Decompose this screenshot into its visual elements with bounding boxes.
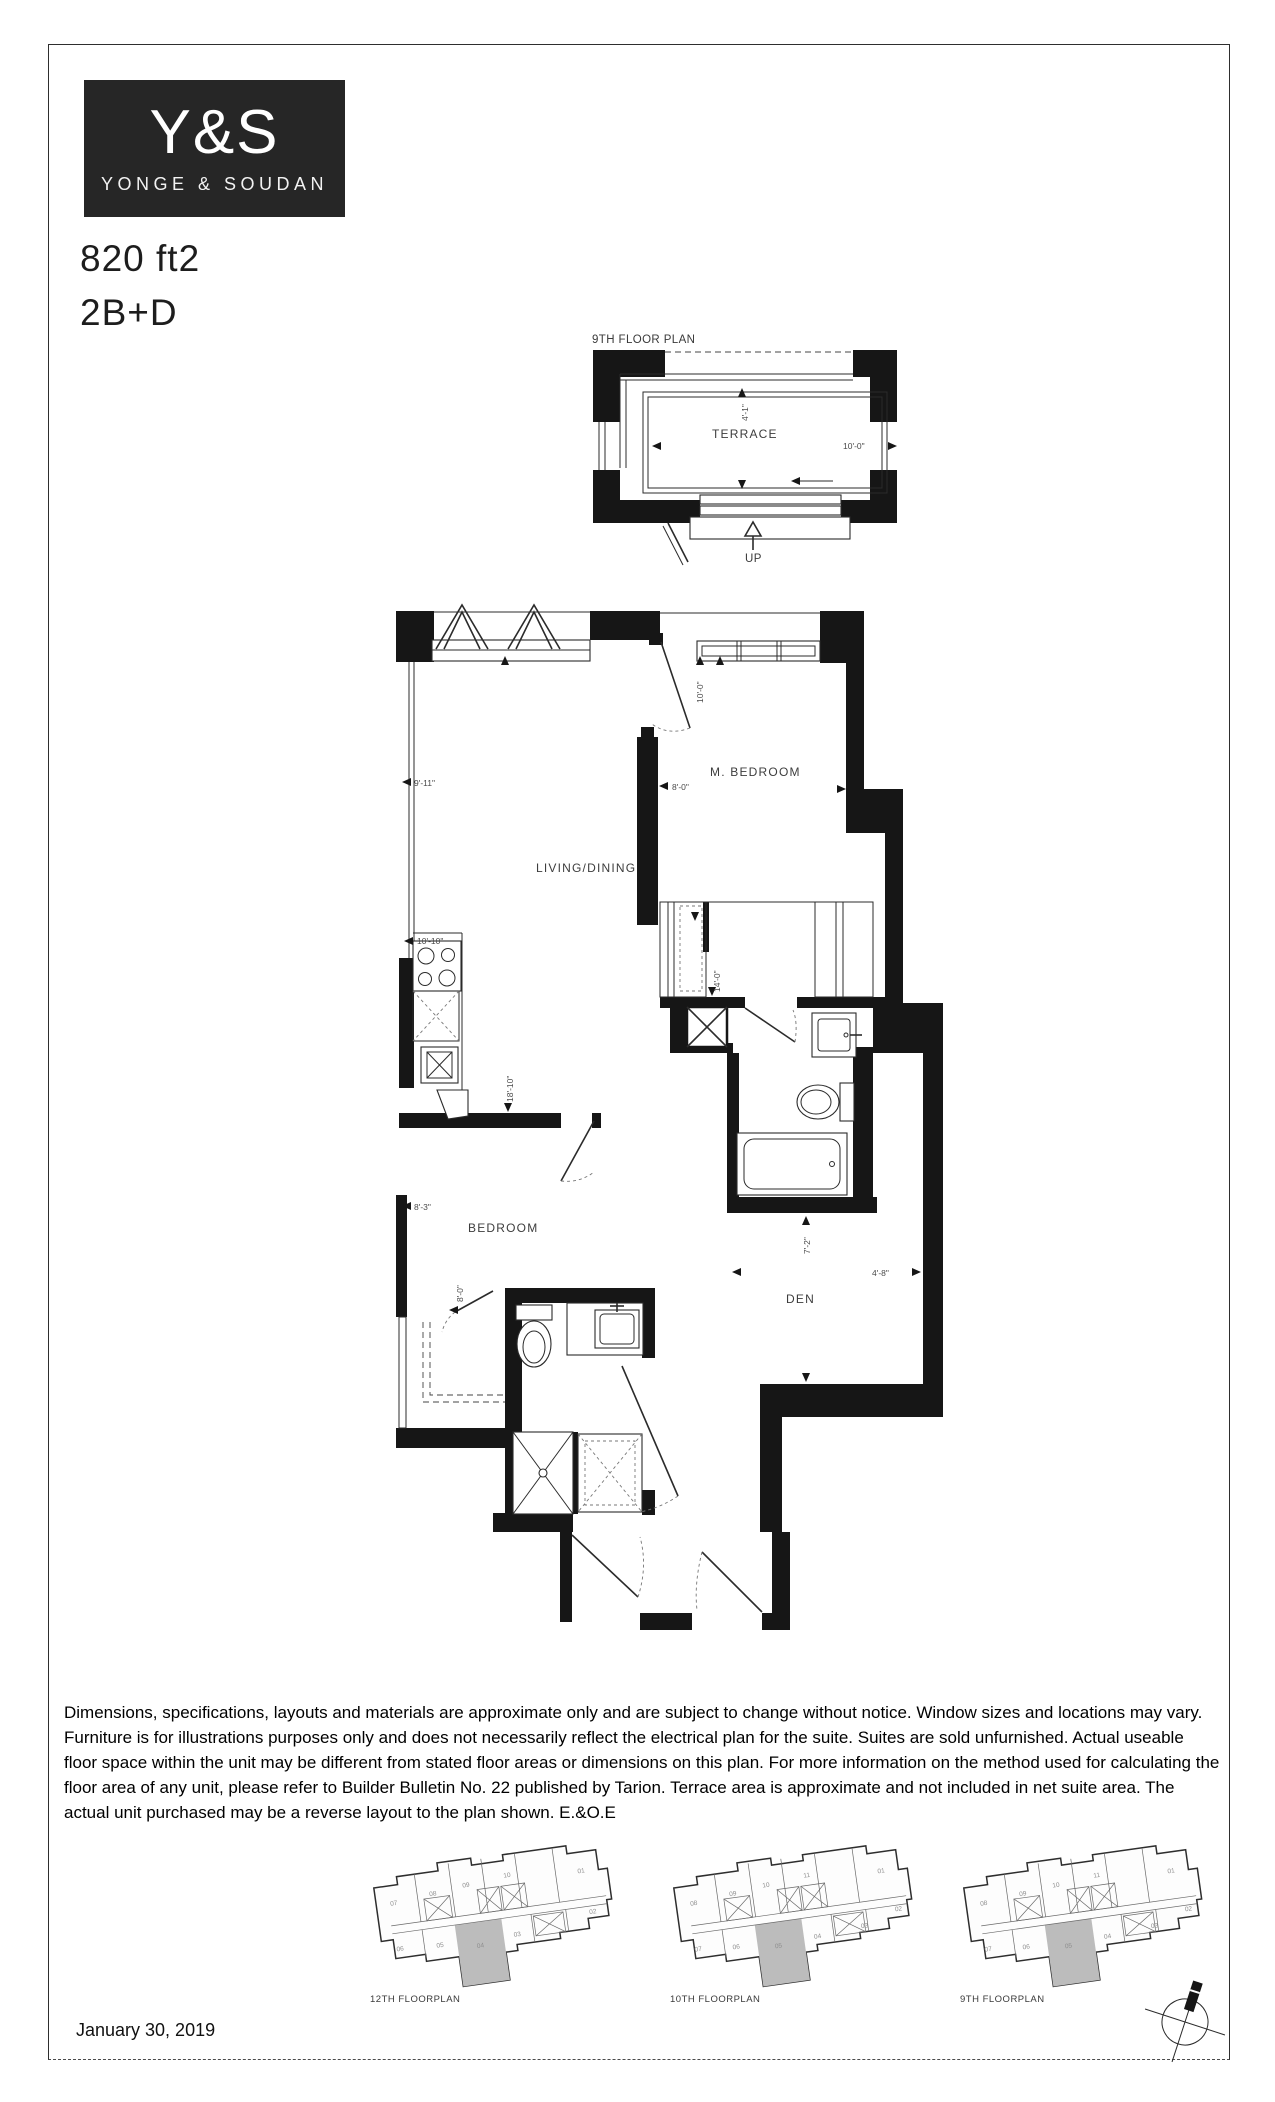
unit-number: 03 <box>513 1931 522 1939</box>
unit-number: 10 <box>1052 1882 1061 1890</box>
unit-number: 03 <box>1151 1922 1160 1930</box>
unit-number: 05 <box>1065 1942 1074 1950</box>
terrace-depth-dim: 4'-1" <box>740 404 750 421</box>
dim-living-width: 9'-11" <box>414 778 435 788</box>
unit-number: 05 <box>436 1942 445 1950</box>
balcony-door <box>652 642 690 731</box>
terrace-width-dim: 10'-0" <box>843 441 865 451</box>
bedroom-label: BEDROOM <box>468 1221 538 1235</box>
dishwasher <box>413 991 459 1041</box>
brand-name: YONGE & SOUDAN <box>101 174 328 195</box>
dim-bedroom-closet: 8'-0" <box>455 1285 465 1302</box>
highlighted-unit <box>1045 1919 1100 1987</box>
terrace-plan-title: 9TH FLOOR PLAN <box>592 334 695 346</box>
dim-closet-run: 14'-0" <box>712 970 722 992</box>
dim-den-width: 4'-8" <box>872 1268 889 1278</box>
unit-number: 04 <box>476 1942 485 1950</box>
key-plan-label: 10TH FLOORPLAN <box>670 1994 760 2005</box>
floorplan-sheet: Y&S YONGE & SOUDAN 820 ft2 2B+D 9TH FLOO… <box>0 0 1275 2102</box>
master-closets <box>660 902 873 997</box>
highlighted-unit <box>455 1919 510 1987</box>
main-bath <box>737 1008 862 1195</box>
kitchen <box>413 933 468 1119</box>
suite-plan: LIVING/DINING M. BEDROOM BEDROOM DEN 9'-… <box>390 595 955 1640</box>
unit-number: 09 <box>462 1882 471 1890</box>
brand-abbreviation: Y&S <box>149 102 279 164</box>
unit-number: 02 <box>895 1905 904 1913</box>
unit-number: 01 <box>877 1867 886 1875</box>
dim-master-width: 8'-0" <box>672 782 689 792</box>
disclaimer-text: Dimensions, specifications, layouts and … <box>64 1700 1220 1825</box>
key-plan-label: 9TH FLOORPLAN <box>960 1994 1045 2005</box>
plan-date: January 30, 2019 <box>76 2020 215 2041</box>
unit-number: 06 <box>1022 1943 1031 1951</box>
unit-number: 08 <box>690 1900 699 1908</box>
bathtub <box>737 1133 847 1195</box>
brand-logo: Y&S YONGE & SOUDAN <box>84 80 345 217</box>
unit-number: 06 <box>732 1943 741 1951</box>
bath2-sink <box>595 1310 639 1348</box>
unit-number: 07 <box>984 1946 993 1954</box>
unit-number: 01 <box>577 1867 586 1875</box>
den-label: DEN <box>786 1292 815 1306</box>
unit-number: 04 <box>1104 1933 1113 1941</box>
living-label: LIVING/DINING <box>536 861 636 875</box>
unit-number: 08 <box>429 1890 438 1898</box>
master-window <box>696 641 820 665</box>
unit-layout: 2B+D <box>80 292 178 334</box>
toilet-tank <box>840 1083 854 1121</box>
unit-number: 06 <box>396 1945 405 1953</box>
living-window <box>432 605 590 665</box>
unit-number: 11 <box>803 1872 811 1880</box>
unit-number: 02 <box>1185 1905 1194 1913</box>
bedroom-closet <box>423 1291 505 1402</box>
master-label: M. BEDROOM <box>710 765 801 779</box>
unit-number: 09 <box>729 1890 738 1898</box>
unit-number: 10 <box>503 1872 512 1880</box>
unit-number: 03 <box>861 1922 870 1930</box>
unit-number: 08 <box>980 1900 989 1908</box>
unit-number: 11 <box>1093 1872 1101 1880</box>
dim-master-depth: 10'-0" <box>695 681 705 703</box>
dim-kitchen: 10'-10" <box>417 936 443 946</box>
terrace-plan: 9TH FLOOR PLAN 4'-1" TERRACE 10'-0" UP <box>585 328 915 570</box>
toilet2-tank <box>516 1305 552 1320</box>
terrace-room-label: TERRACE <box>712 427 778 441</box>
unit-area: 820 ft2 <box>80 238 200 280</box>
unit-number: 05 <box>775 1942 784 1950</box>
unit-number: 09 <box>1019 1890 1028 1898</box>
toilet2-bowl <box>517 1321 551 1367</box>
bedroom-door <box>561 1121 594 1181</box>
unit-number: 07 <box>390 1900 399 1908</box>
compass-icon <box>1140 1972 1240 2072</box>
shaft <box>687 1007 727 1047</box>
key-plan-label: 12TH FLOORPLAN <box>370 1994 460 2005</box>
unit-number: 01 <box>1167 1867 1176 1875</box>
highlighted-unit <box>755 1919 810 1987</box>
dim-den-depth: 7'-2" <box>802 1237 812 1254</box>
terrace-stairs-label: UP <box>745 553 762 565</box>
unit-number: 07 <box>694 1946 703 1954</box>
unit-number: 02 <box>589 1908 598 1916</box>
unit-number: 04 <box>814 1933 823 1941</box>
dimension-arrows <box>402 778 921 1382</box>
dim-bedroom-width: 8'-3" <box>414 1202 431 1212</box>
unit-number: 10 <box>762 1882 771 1890</box>
key-plan-10th: 08 09 10 11 01 07 06 05 04 03 02 10TH FL… <box>660 1830 925 2010</box>
entry-doors <box>572 1535 762 1612</box>
key-plan-12th: 07 08 09 10 01 06 05 04 03 02 12TH FLOOR… <box>360 1830 625 2010</box>
dim-living-length: 18'-10" <box>505 1076 515 1102</box>
